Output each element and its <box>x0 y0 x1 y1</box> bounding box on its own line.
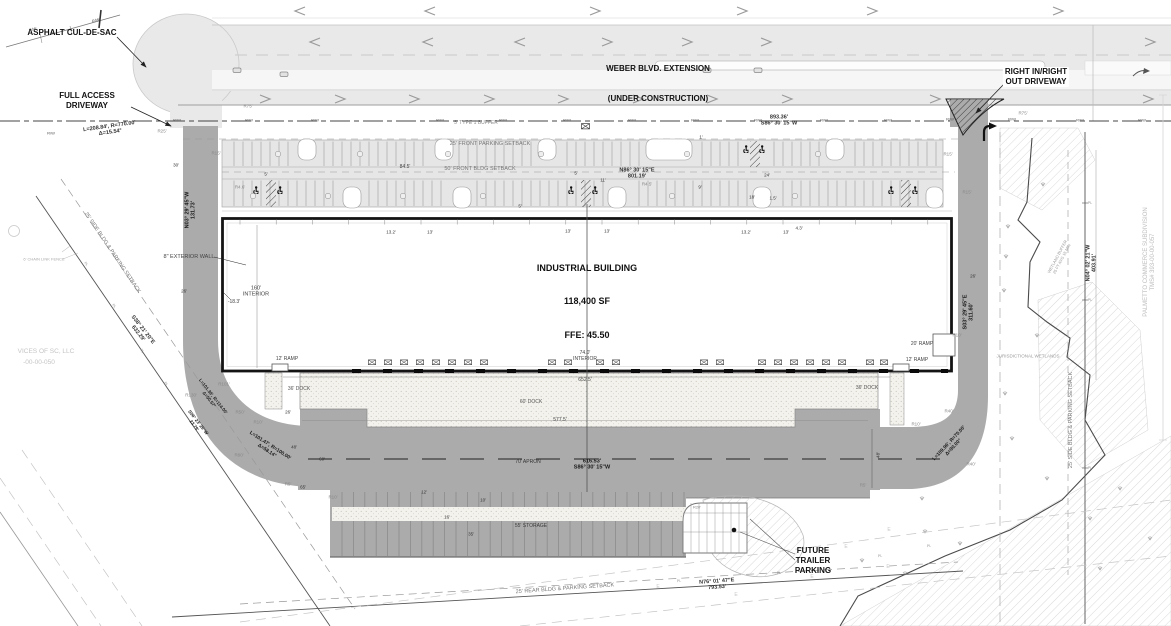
accessible-aisle-hatch <box>901 180 911 207</box>
wetland-marker-icon <box>1003 391 1007 395</box>
wetland-marker-icon <box>1002 288 1006 292</box>
lane-arrow-icon <box>867 7 877 15</box>
accessible-aisle-hatch <box>581 180 591 207</box>
dock-door-icon <box>774 360 781 365</box>
site-plan-drawing <box>0 0 1171 626</box>
dock-door-icon <box>384 360 391 365</box>
dock-door-icon <box>612 360 619 365</box>
dock-door-icon <box>564 360 571 365</box>
landscape-island <box>453 187 471 208</box>
lane-arrow-icon <box>1053 7 1063 15</box>
stall-count-marker <box>250 193 256 199</box>
dock-door-icon <box>758 360 765 365</box>
dock-door-icon <box>866 360 873 365</box>
vehicle-icon <box>280 72 288 77</box>
dock-slab <box>300 373 878 427</box>
dock-door-icon <box>806 360 813 365</box>
wetland-marker-icon <box>860 558 864 562</box>
landscape-island <box>298 139 316 160</box>
vehicle-icon <box>703 68 711 73</box>
dock-door-icon <box>596 360 603 365</box>
landscape-island <box>926 187 943 208</box>
stall-count-marker <box>357 151 363 157</box>
stall-count-marker <box>792 193 798 199</box>
landscape-island <box>646 139 692 160</box>
front-parking <box>183 139 958 211</box>
stall-count-marker <box>815 151 821 157</box>
lane-arrow-icon <box>590 7 600 15</box>
stall-count-marker <box>275 151 281 157</box>
stall-count-marker <box>325 193 331 199</box>
stall-count-marker <box>445 151 451 157</box>
property-line-south <box>172 571 963 617</box>
landscape-island <box>826 139 844 160</box>
dock-door-icon <box>822 360 829 365</box>
weber-blvd-road <box>133 7 1171 128</box>
storage-concrete-band <box>332 507 686 521</box>
accessible-aisle-hatch <box>266 180 276 207</box>
dock-door-icon <box>464 360 471 365</box>
dock-door-icon <box>400 360 407 365</box>
wetland-marker-icon <box>1010 436 1014 440</box>
leader-dot <box>732 528 737 533</box>
wetland-marker-icon <box>1045 476 1049 480</box>
dock-door-icon <box>448 360 455 365</box>
accessible-aisle-hatch <box>750 141 760 167</box>
vehicle-icon <box>233 68 241 73</box>
trailer-storage-yard <box>330 490 686 557</box>
ramp-12-east <box>893 364 909 371</box>
dock-door-icon <box>790 360 797 365</box>
vehicle-icon <box>754 68 762 73</box>
ramp-20 <box>933 334 955 356</box>
dock-door-icon <box>700 360 707 365</box>
dock-door-icon <box>416 360 423 365</box>
rear-setback-line <box>240 562 958 604</box>
dock-door-icon <box>368 360 375 365</box>
landscape-island <box>608 187 626 208</box>
wetland-marker-icon <box>1004 254 1008 258</box>
wetland-hatch <box>1000 128 1095 210</box>
median-lane-bar <box>655 61 1045 70</box>
landscape-island <box>753 187 771 208</box>
survey-marker-icon <box>9 226 20 237</box>
landscape-island <box>343 187 361 208</box>
ramp-12-west <box>272 364 288 371</box>
lane-arrow-icon <box>295 7 305 15</box>
stall-count-marker <box>669 193 675 199</box>
wetland-marker-icon <box>1006 224 1010 228</box>
dock-door-icon <box>880 360 887 365</box>
future-trailer-parking <box>683 496 804 577</box>
monument-marker-icon <box>581 124 589 129</box>
site-plan: ASPHALT CUL-DE-SAC FULL ACCESS DRIVEWAY … <box>0 0 1171 626</box>
dock-door-icon <box>432 360 439 365</box>
stall-count-marker <box>684 151 690 157</box>
dock-door-icon <box>716 360 723 365</box>
dock-door-icon <box>480 360 487 365</box>
lane-arrow-icon <box>737 7 747 15</box>
parcel-bracket <box>1159 95 1167 440</box>
stall-count-marker <box>480 193 486 199</box>
stall-count-marker <box>538 151 544 157</box>
dock-door-icon <box>548 360 555 365</box>
stall-count-marker <box>400 193 406 199</box>
dock-door-icon <box>838 360 845 365</box>
wetland-hatch <box>1038 282 1148 468</box>
wetland-marker-icon <box>958 541 962 545</box>
wetland-marker-icon <box>920 496 924 500</box>
landscape-island <box>435 139 453 160</box>
lane-arrow-icon <box>425 7 435 15</box>
